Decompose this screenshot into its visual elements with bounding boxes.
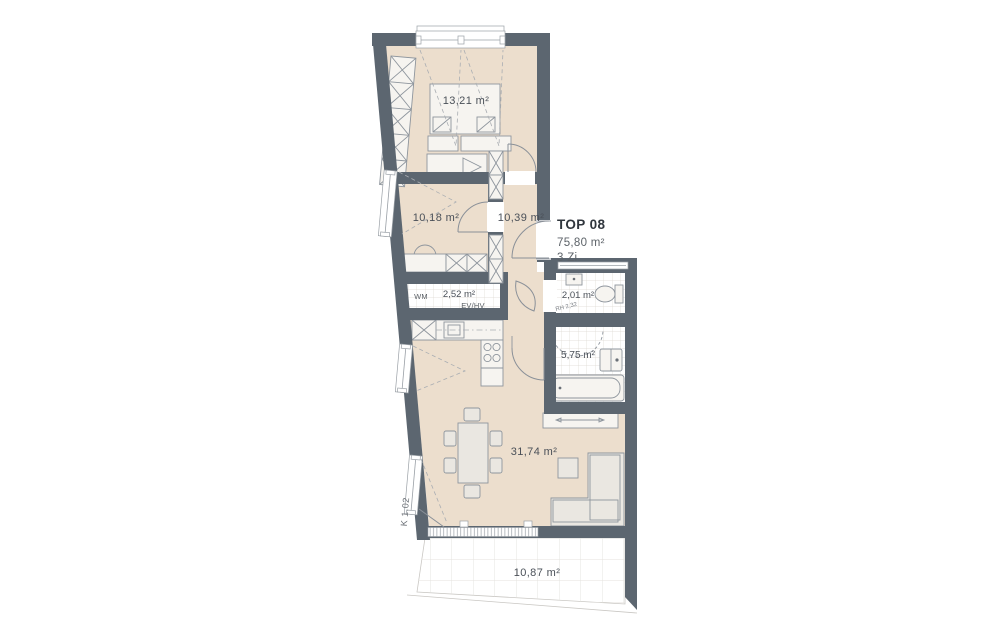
chair [444, 431, 456, 446]
label-hall-area: 10,39 m² [498, 212, 545, 224]
bench [461, 136, 511, 151]
chair [490, 458, 502, 473]
label-wc-area: 2,01 m² [562, 290, 594, 301]
corridor-reference: K 1.02 [399, 497, 411, 527]
floor-plan-page: 13,21 m² 10,18 m² 10,39 m² 2,52 m² WM EV… [0, 0, 1000, 641]
chair [490, 431, 502, 446]
bathtub [546, 375, 624, 401]
label-ev-hv: EV/HV [461, 301, 485, 310]
chair [464, 485, 480, 498]
toilet [595, 286, 615, 302]
chair [464, 408, 480, 421]
label-washing-machine: WM [414, 292, 428, 301]
label-utility-area: 2,52 m² [443, 289, 475, 300]
floor-plan: 13,21 m² 10,18 m² 10,39 m² 2,52 m² WM EV… [0, 0, 1000, 641]
label-terrace-area: 10,87 m² [514, 567, 561, 579]
chair [444, 458, 456, 473]
label-bath-area: 5,75 m² [561, 350, 596, 361]
cistern [615, 285, 623, 303]
dining-table [458, 423, 488, 483]
sideboard [543, 413, 618, 428]
side-table [558, 458, 578, 478]
label-bedroom1-area: 13,21 m² [443, 95, 490, 107]
apartment-name: TOP 08 [557, 217, 606, 232]
label-bedroom2-area: 10,18 m² [413, 212, 460, 224]
bedroom-window [416, 31, 505, 48]
shelf [404, 254, 446, 272]
apartment-total-area: 75,80 m² [557, 237, 605, 249]
label-living-area: 31,74 m² [511, 446, 558, 458]
apartment-room-count: 3 Zi. [557, 252, 581, 264]
